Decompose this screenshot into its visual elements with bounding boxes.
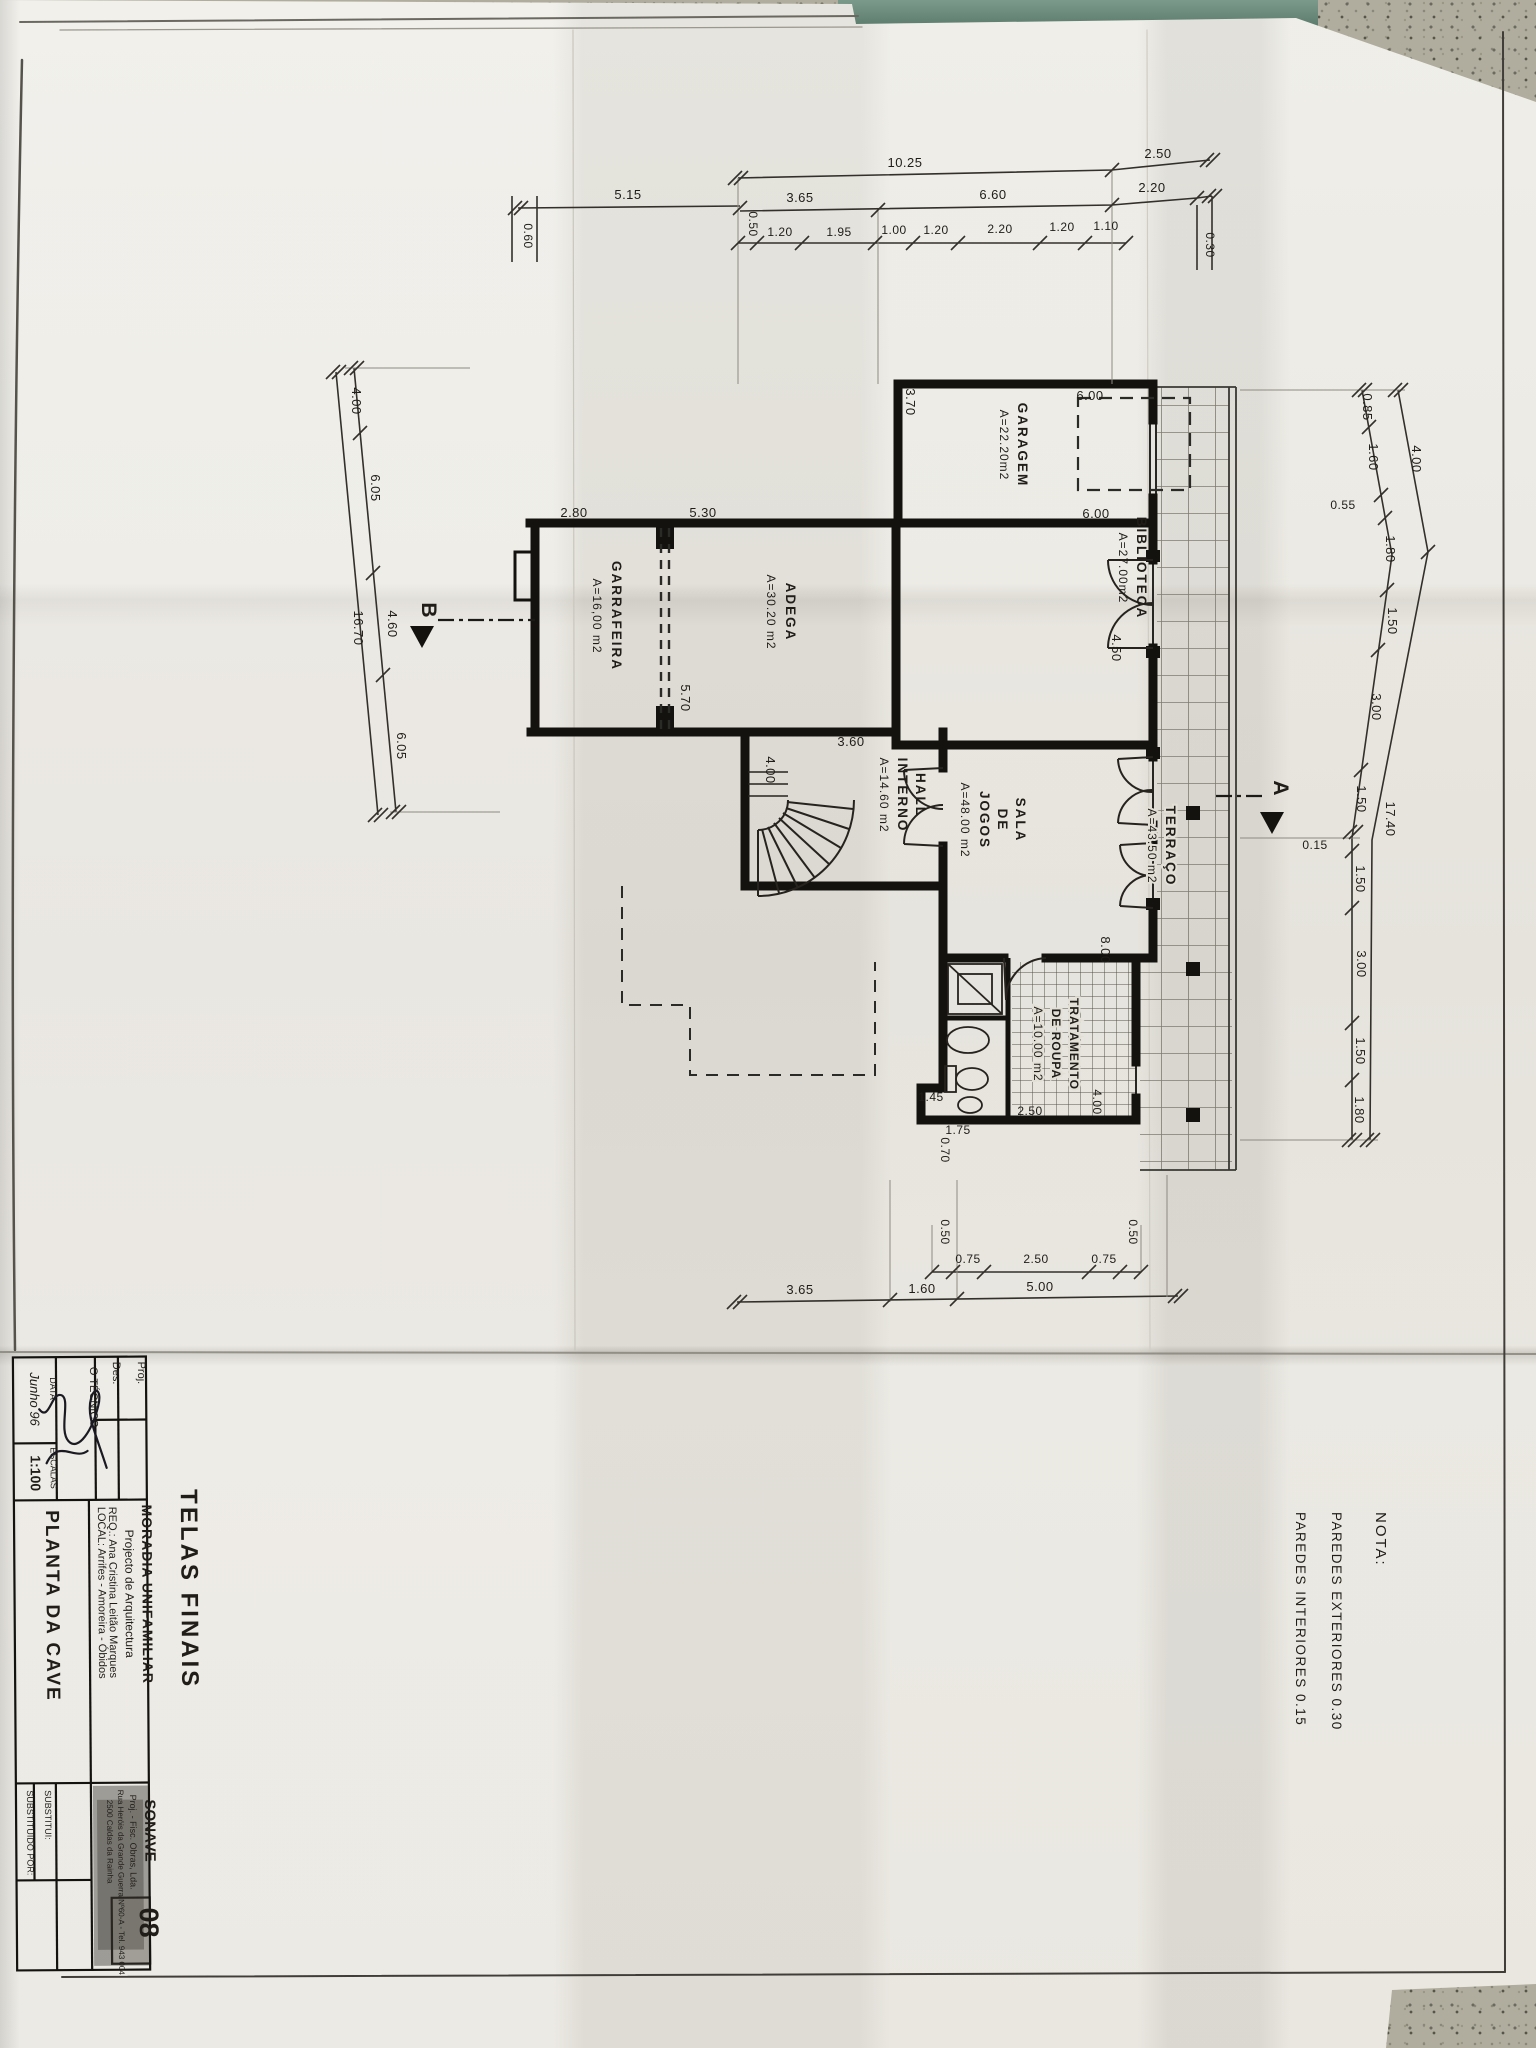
nota-block: NOTA: PAREDES EXTERIORES 0.30 PAREDES IN… xyxy=(1293,1512,1389,1731)
dim-6-60: 6.60 xyxy=(979,187,1006,202)
field-des-label: Des. xyxy=(110,1362,122,1385)
dim-6-00-biblioteca: 6.00 xyxy=(1082,506,1109,521)
dim-17-40: 17.40 xyxy=(1383,801,1398,836)
dim-left-outer-line xyxy=(336,372,378,815)
dim-2-50-top: 2.50 xyxy=(1144,146,1171,161)
terrace-tiles-lower xyxy=(1140,1120,1232,1170)
nota-line-1: PAREDES EXTERIORES 0.30 xyxy=(1329,1512,1344,1731)
dim-3-70: 3.70 xyxy=(903,388,918,415)
room-label-tratamento-2: DE ROUPA xyxy=(1049,1009,1063,1079)
dim-0-30: 0.30 xyxy=(1203,232,1217,257)
field-data-value: Junho 96 xyxy=(27,1371,42,1426)
nota-line-2: PAREDES INTERIORES 0.15 xyxy=(1293,1512,1308,1726)
dim-1-20-a: 1.20 xyxy=(767,225,792,239)
wc-fixtures xyxy=(945,964,1002,1113)
project-title: MORADIA UNIFAMILIAR xyxy=(139,1504,156,1684)
dim-3-00-a: 3.00 xyxy=(1369,693,1384,720)
terrace-column xyxy=(1186,806,1200,820)
room-label-adega: ADEGA xyxy=(783,583,798,642)
dim-top-outer-line xyxy=(738,160,1210,178)
unexcavated-dashed-outline xyxy=(622,886,875,1075)
title-block: TELAS FINAIS Proj. Des. O TÉCNICO DATA J… xyxy=(13,1356,205,1976)
dim-5-70: 5.70 xyxy=(678,684,693,711)
photo-of-floor-plan: 10.25 2.50 5.15 3.65 6.60 2.20 0.50 1.20… xyxy=(0,0,1536,2048)
fold-line-vertical xyxy=(573,30,575,1350)
dim-right-outer-line xyxy=(1370,390,1428,1140)
room-label-biblioteca: BIBLIOTECA xyxy=(1134,517,1149,620)
frame-bottom xyxy=(62,1972,1505,1977)
dim-3-60: 3.60 xyxy=(837,734,864,749)
dim-1-50-b: 1.50 xyxy=(1354,785,1369,812)
dim-1-50-c: 1.50 xyxy=(1353,865,1368,892)
project-subtitle: Projecto de Arquitectura xyxy=(122,1530,137,1658)
washbasin xyxy=(947,1027,989,1053)
dim-0-70: 0.70 xyxy=(938,1137,952,1162)
field-proj-label: Proj. xyxy=(135,1362,147,1385)
room-label-garrafeira: GARRAFEIRA xyxy=(609,561,624,671)
stamp-telas-finais: TELAS FINAIS xyxy=(175,1489,203,1689)
dim-1-00: 1.00 xyxy=(881,223,906,237)
room-label-sala-2: DE xyxy=(995,809,1010,832)
fold-line xyxy=(0,1352,1536,1354)
dim-4-50: 4.50 xyxy=(1109,634,1124,661)
dim-3-65-top: 3.65 xyxy=(786,190,813,205)
toilet-bowl xyxy=(956,1068,988,1090)
room-area-garrafeira: A=16,00 m2 xyxy=(590,578,604,653)
substituido-label: SUBSTITUIDO POR: xyxy=(25,1790,36,1875)
wall-stubs xyxy=(656,527,1160,910)
dim-0-50-ba: 0.50 xyxy=(938,1219,952,1244)
section-a-arrow xyxy=(1260,812,1284,834)
dim-4-00-left: 4.00 xyxy=(349,387,364,414)
witness-left xyxy=(345,368,500,812)
dim-0-55: 0.55 xyxy=(1330,498,1355,512)
dim-5-30: 5.30 xyxy=(689,505,716,520)
dim-4-00-laundry: 4.00 xyxy=(1090,1089,1104,1114)
drawing-title: PLANTA DA CAVE xyxy=(41,1510,63,1702)
dim-8-00: 8.00 xyxy=(1098,936,1113,963)
thin-walls xyxy=(515,552,1008,1120)
dim-5-15: 5.15 xyxy=(614,187,641,202)
dim-left-inner-line xyxy=(354,368,396,812)
dim-1-20-c: 1.20 xyxy=(1049,220,1074,234)
dim-4-60: 4.60 xyxy=(385,610,400,637)
room-label-terraco: TERRAÇO xyxy=(1163,806,1178,887)
dim-2-20-top: 2.20 xyxy=(1138,180,1165,195)
dim-1-75: 1.75 xyxy=(945,1123,970,1137)
room-label-tratamento-1: TRATAMENTO xyxy=(1067,998,1081,1090)
dim-10-25: 10.25 xyxy=(887,155,922,170)
room-label-garagem: GARAGEM xyxy=(1015,403,1030,488)
dim-0-85: 0.85 xyxy=(1360,393,1375,420)
section-b-label: B xyxy=(417,602,440,617)
company-line-2: Rua Heróis da Grande Guerra Nº60-A - Tel… xyxy=(116,1790,126,1976)
dim-1-50-d: 1.50 xyxy=(1353,1037,1368,1064)
floor-plan-drawing: 10.25 2.50 5.15 3.65 6.60 2.20 0.50 1.20… xyxy=(0,0,1536,2048)
dim-0-75-b: 0.75 xyxy=(1091,1252,1116,1266)
garrafeira-adega-partition-dashed xyxy=(661,528,669,730)
dim-2-20-b: 2.20 xyxy=(987,222,1012,236)
dim-1-20-b: 1.20 xyxy=(923,223,948,237)
winder-staircase xyxy=(748,772,854,896)
dim-4-00-right: 4.00 xyxy=(1409,445,1424,472)
company-name: SONAVE xyxy=(141,1799,158,1861)
dim-1-80-b: 1.80 xyxy=(1352,1096,1367,1123)
room-area-garagem: A=22.20m2 xyxy=(997,410,1011,481)
dim-0-60: 0.60 xyxy=(521,223,535,248)
dim-0-75-a: 0.75 xyxy=(955,1252,980,1266)
terrace-column xyxy=(1186,962,1200,976)
dim-1-10: 1.10 xyxy=(1093,219,1118,233)
section-a-label: A xyxy=(1269,780,1292,795)
stair-inner-arc xyxy=(758,800,788,830)
room-label-sala-1: SALA xyxy=(1013,798,1028,843)
dim-1-60-bottom: 1.60 xyxy=(908,1281,935,1296)
nota-title: NOTA: xyxy=(1372,1512,1389,1567)
terrace-tiles-mid xyxy=(1140,958,1232,1120)
company-line-1: Proj. - Fisc. Obras, Lda. xyxy=(128,1795,139,1890)
dim-0-50-bb: 0.50 xyxy=(1126,1219,1140,1244)
witness-right xyxy=(1240,390,1405,1140)
dim-1-50-a: 1.50 xyxy=(1385,607,1400,634)
dim-0-15: 0.15 xyxy=(1302,838,1327,852)
dim-4-00-hall: 4.00 xyxy=(763,756,778,783)
dim-1-95: 1.95 xyxy=(826,225,851,239)
dim-1-80-a: 1.80 xyxy=(1383,535,1398,562)
room-area-biblioteca: A=27.00m2 xyxy=(1116,533,1130,604)
dim-3-65-bottom: 3.65 xyxy=(786,1282,813,1297)
bidet xyxy=(958,1097,982,1113)
dim-2-50-b: 2.50 xyxy=(1023,1252,1048,1266)
substitui-label: SUBSTITUI: xyxy=(43,1790,53,1840)
company-line-3: 2500 Caldas da Rainha xyxy=(105,1800,115,1884)
room-area-adega: A=30.20 m2 xyxy=(764,574,778,649)
dim-16-70: 16.70 xyxy=(351,610,366,645)
dim-5-00: 5.00 xyxy=(1026,1279,1053,1294)
dim-0-50-top: 0.50 xyxy=(746,211,760,236)
sheet-number: 08 xyxy=(134,1907,164,1937)
room-area-hall: A=14.60 m2 xyxy=(877,757,891,832)
dimension-texts: 10.25 2.50 5.15 3.65 6.60 2.20 0.50 1.20… xyxy=(349,146,1424,1297)
room-label-hall-2: INTERNO xyxy=(895,758,910,833)
section-b-arrow xyxy=(410,626,434,648)
room-label-sala-3: JOGOS xyxy=(977,791,992,849)
dim-6-00-garage: 6.00 xyxy=(1076,388,1103,403)
dim-1-60-right: 1.60 xyxy=(1366,443,1381,470)
location: LOCAL: Arrifes - Amoreira - Óbidos xyxy=(95,1507,109,1679)
room-area-sala: A=48.00 m2 xyxy=(958,782,972,857)
dim-6-05-b: 6.05 xyxy=(394,732,409,759)
room-label-hall-1: HALL xyxy=(913,773,928,817)
dim-2-80: 2.80 xyxy=(560,505,587,520)
room-area-terraco: A=43.50 m2 xyxy=(1145,808,1159,883)
dim-6-05-a: 6.05 xyxy=(368,474,383,501)
dim-1-45: 1.45 xyxy=(918,1090,943,1104)
dim-3-00-b: 3.00 xyxy=(1354,950,1369,977)
dim-2-50-laundry: 2.50 xyxy=(1017,1104,1042,1118)
paper-left-edge xyxy=(13,60,22,1350)
sala-door-1-leaf-1 xyxy=(1118,757,1153,792)
frame-right xyxy=(1503,32,1505,1972)
room-area-tratamento: A=10.00 m2 xyxy=(1031,1006,1045,1081)
terrace-column xyxy=(1186,1108,1200,1122)
field-escalas-value: 1:100 xyxy=(28,1455,44,1491)
frame-top xyxy=(60,27,862,30)
